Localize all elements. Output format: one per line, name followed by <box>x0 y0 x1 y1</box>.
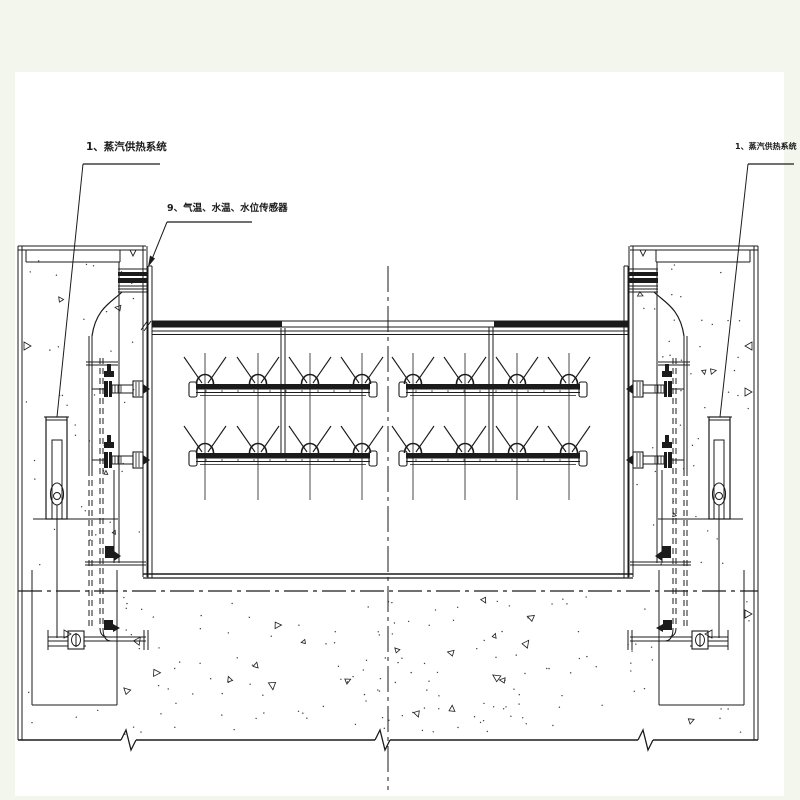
label-steam-system-right: 1、蒸汽供热系统 <box>735 141 797 152</box>
left-pier-assembly <box>18 246 150 740</box>
drawing-sheet: 1、蒸汽供热系统 9、气温、水温、水位传感器 1、蒸汽供热系统 <box>0 0 800 800</box>
spray-pipes-and-nozzles <box>184 353 590 500</box>
right-pier-assembly <box>626 246 758 740</box>
engineering-drawing <box>0 0 800 800</box>
label-steam-system-left: 1、蒸汽供热系统 <box>86 139 167 154</box>
gate-leaf <box>141 266 633 578</box>
label-sensors: 9、气温、水温、水位传感器 <box>167 200 288 214</box>
